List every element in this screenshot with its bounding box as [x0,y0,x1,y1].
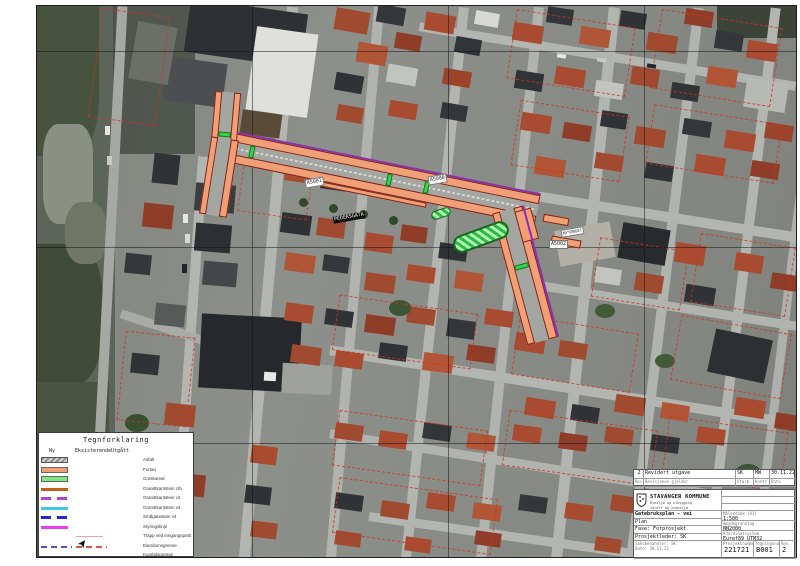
building [245,26,318,118]
legend-swatch [41,497,68,500]
legend-title: Tegnforklaring [39,436,193,444]
legend-row-label: Kvartalsgrense [143,552,173,557]
approval-godkjent: Godkjent [722,504,796,511]
revision-cell: Rev. 2 [780,541,796,559]
building [152,153,181,186]
legend-swatch [41,546,72,548]
project-number-cell: Prosjektnummer 221721 [722,541,754,559]
building [322,254,350,273]
revision-date: 30.11.22 [770,470,796,479]
approval-kontrollert: Kontrollert avSK [722,497,796,504]
building [124,253,152,276]
building [250,520,278,539]
building [454,270,484,292]
project-line: Prosjektleder: SK [634,534,722,542]
legend-row-label: Granittkantstein v2 [143,495,181,500]
title-block: 2 Revidert utgave SK MW 30.11.22 Rev. Re… [633,469,795,558]
tree [329,204,338,213]
point-label: A5002 [549,240,568,249]
meta-datum: HøydegrunnlagNN2000 [722,521,796,531]
building [364,232,394,254]
legend-row-label: Grøntareal [143,476,165,481]
tree [595,304,615,318]
car [183,214,188,223]
org-dept-2: Idrett og utemiljø [650,506,688,510]
park-slope [65,202,107,264]
footer-left-cell: Saksbehandler: SK Dato: 30.11.22 [634,541,722,559]
drawing-number-cell: Tegningsnummer B001 [754,541,780,559]
grid-line-h [37,247,797,248]
legend-row-label: Styringslinje [143,524,167,529]
building [244,484,272,505]
meta-scale: Målestokk (A1)1:500 [722,511,796,521]
parcel-line [116,331,195,428]
legend-column-utgatt: Utgått [111,448,129,454]
revision-header-kontr: Kontr [754,479,770,487]
approval-utarbeidet: Utarbeidet avMN [722,490,796,497]
legend-swatch [41,516,68,519]
legend-swatch [41,476,68,482]
drawing-sheet: { "icons": { "north_arrow": "➤" }, "lege… [0,0,800,566]
revision-kontr: MW [754,470,770,479]
revision-header-rev: Rev. [634,479,644,487]
park-trees [37,244,103,384]
tree [389,216,398,225]
building [284,302,314,324]
revision-description: Revidert utgave [644,470,736,479]
building [202,261,238,288]
legend-row-label: Asfalt [143,457,154,462]
org-cell: STAVANGER KOMMUNE Bymiljø og utbygging I… [634,490,722,511]
revision-header-desc: Revisjonen gjelder [644,479,736,487]
building [400,224,428,243]
legend-row-label: Granittkantstein v4 [143,505,181,510]
meta-coordsys: KoordinatsystemEuref89 UTM32 [722,531,796,541]
legend-panel: Tegnforklaring Ny Eksisterende Utgått As… [38,432,194,557]
building [154,302,186,327]
legend-row-label: Fortau [143,467,156,472]
grid-line-v [448,6,449,558]
legend-swatch [41,526,68,529]
legend-row-label: Trapp ved inngangsparti [143,533,191,538]
legend-swatch [41,467,68,473]
car [182,264,187,273]
legend-column-ny: Ny [49,448,55,454]
grid-line-h [37,51,797,52]
project-number: 221721 [722,546,753,555]
drawing-number: B001 [754,546,779,555]
building [281,363,333,396]
crossing [218,131,230,137]
building [264,372,276,382]
legend-swatch [41,457,68,463]
grid-line-v [252,6,253,558]
legend-swatch [41,488,68,491]
revision-utarb: SK [736,470,754,479]
car [107,156,112,165]
footer-line: Dato: 30.11.22 [634,546,721,551]
stavanger-kommune-logo [636,493,647,507]
revision-number: 2 [634,470,644,479]
project-title: Gatebruksplan - vei [634,511,722,519]
revision-table: 2 Revidert utgave SK MW 30.11.22 Rev. Re… [633,469,795,486]
legend-column-eksisterende: Eksisterende [75,448,111,454]
car [105,126,110,135]
revision-header-utarb: Utarb [736,479,754,487]
building [250,444,278,465]
org-dept-1: Bymiljø og utbygging [650,501,692,505]
building [142,202,174,229]
title-block-main: STAVANGER KOMMUNE Bymiljø og utbygging I… [633,489,795,558]
revision-header-date: Dato [770,479,796,487]
legend-swatch [41,507,68,510]
legend-row-label: Eiendomsgrense [143,543,177,548]
legend-row-label: Granittkantstein c/b [143,486,182,491]
building [194,222,232,253]
project-line: Fase: Forprosjekt [634,526,722,534]
project-line: Plan [634,519,722,527]
parcel-line [690,233,796,317]
org-name: STAVANGER KOMMUNE [650,494,710,500]
legend-row-label: Smågatestein v4 [143,514,177,519]
revision-value: 2 [780,546,795,555]
car [185,234,190,243]
